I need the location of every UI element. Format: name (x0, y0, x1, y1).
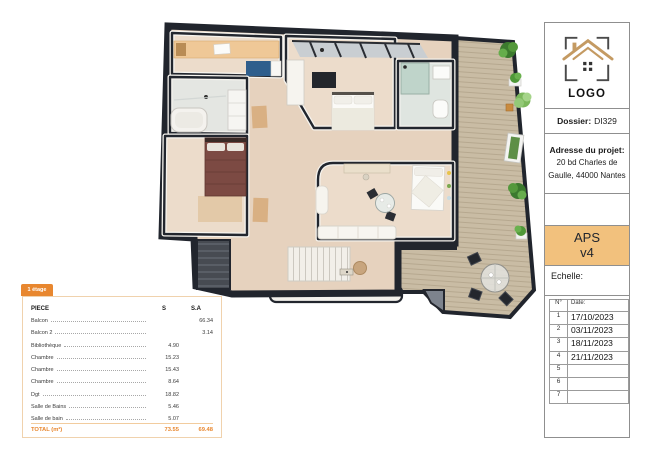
date-row: 203/11/2023 (550, 325, 628, 338)
toilet (433, 100, 448, 118)
date-row: 318/11/2023 (550, 338, 628, 351)
area-row: Bibliothèque4.90 (31, 336, 213, 348)
dates-table: N° Date: 117/10/2023 203/11/2023 318/11/… (549, 299, 629, 404)
phase-version-box: APS v4 (545, 226, 629, 266)
address-value: 20 bd Charles de Gaulle, 44000 Nantes (548, 157, 626, 182)
version-label: v4 (580, 246, 594, 261)
lounge-chair (316, 186, 328, 214)
area-table-header: PIECE S S.A (31, 301, 213, 312)
dossier-value: DI329 (594, 116, 617, 126)
date-row: 117/10/2023 (550, 312, 628, 325)
area-row: Balcon66.34 (31, 312, 213, 324)
bed (332, 92, 374, 130)
wardrobe (287, 60, 304, 105)
phase-label: APS (574, 231, 600, 246)
blue-cabinet (246, 61, 271, 76)
sofa (318, 226, 396, 239)
rug (198, 196, 242, 222)
vanity (228, 90, 246, 130)
room-bedroom-left (164, 136, 247, 235)
area-row: Dgt18.82 (31, 385, 213, 397)
flower-pot (506, 104, 513, 111)
drawing-sheet: 1 étage PIECE S S.A Balcon66.34 Balcon 2… (0, 0, 650, 460)
address-section: Adresse du projet: 20 bd Charles de Gaul… (545, 134, 629, 194)
area-row: Salle de Bains5.46 (31, 398, 213, 410)
stairwell-void (197, 240, 230, 289)
chimney-block (424, 290, 444, 312)
date-row: 5 (550, 365, 628, 378)
area-total-row: TOTAL (m²) 73.55 69.48 (31, 423, 213, 437)
date-row: 6 (550, 378, 628, 391)
dates-section: N° Date: 117/10/2023 203/11/2023 318/11/… (545, 296, 629, 437)
dresser (271, 61, 281, 76)
dossier-section: Dossier: DI329 (545, 109, 629, 134)
door-mat (253, 198, 269, 223)
date-row: 421/11/2023 (550, 352, 628, 365)
area-row: Salle de bain5.07 (31, 410, 213, 422)
scale-label: Echelle: (551, 271, 583, 281)
area-row: Balcon 23.14 (31, 324, 213, 336)
dates-header: N° Date: (550, 300, 628, 312)
dossier-label: Dossier: (557, 116, 591, 126)
room-bedroom-right (316, 163, 453, 239)
door-mat (251, 106, 267, 129)
logo-section: LOGO (545, 23, 629, 109)
pendant-light (320, 48, 324, 52)
shower-head (403, 65, 407, 69)
area-row: Chambre15.23 (31, 349, 213, 361)
bed (205, 138, 246, 196)
empty-section (545, 194, 629, 226)
room-library (172, 33, 281, 76)
desk (344, 164, 390, 173)
area-table: PIECE S S.A Balcon66.34 Balcon 23.14 Bib… (22, 296, 222, 438)
bookshelf (176, 43, 186, 56)
room-bathroom-right (398, 61, 453, 128)
date-row: 7 (550, 391, 628, 403)
floor-label-tab: 1 étage (21, 284, 53, 296)
house-logo-icon (558, 32, 616, 86)
pouf (354, 262, 367, 275)
black-console (312, 72, 336, 88)
address-label: Adresse du projet: (548, 145, 626, 156)
room-bathroom-left (170, 77, 247, 134)
area-row: Chambre15.43 (31, 361, 213, 373)
sink (433, 66, 450, 79)
skylight-windows (292, 41, 428, 58)
logo-text: LOGO (568, 88, 606, 100)
planter-box (504, 133, 524, 163)
bed (411, 165, 445, 210)
area-row: Chambre8.64 (31, 373, 213, 385)
scale-section: Echelle: (545, 266, 629, 296)
title-block: LOGO Dossier: DI329 Adresse du projet: 2… (544, 22, 630, 438)
